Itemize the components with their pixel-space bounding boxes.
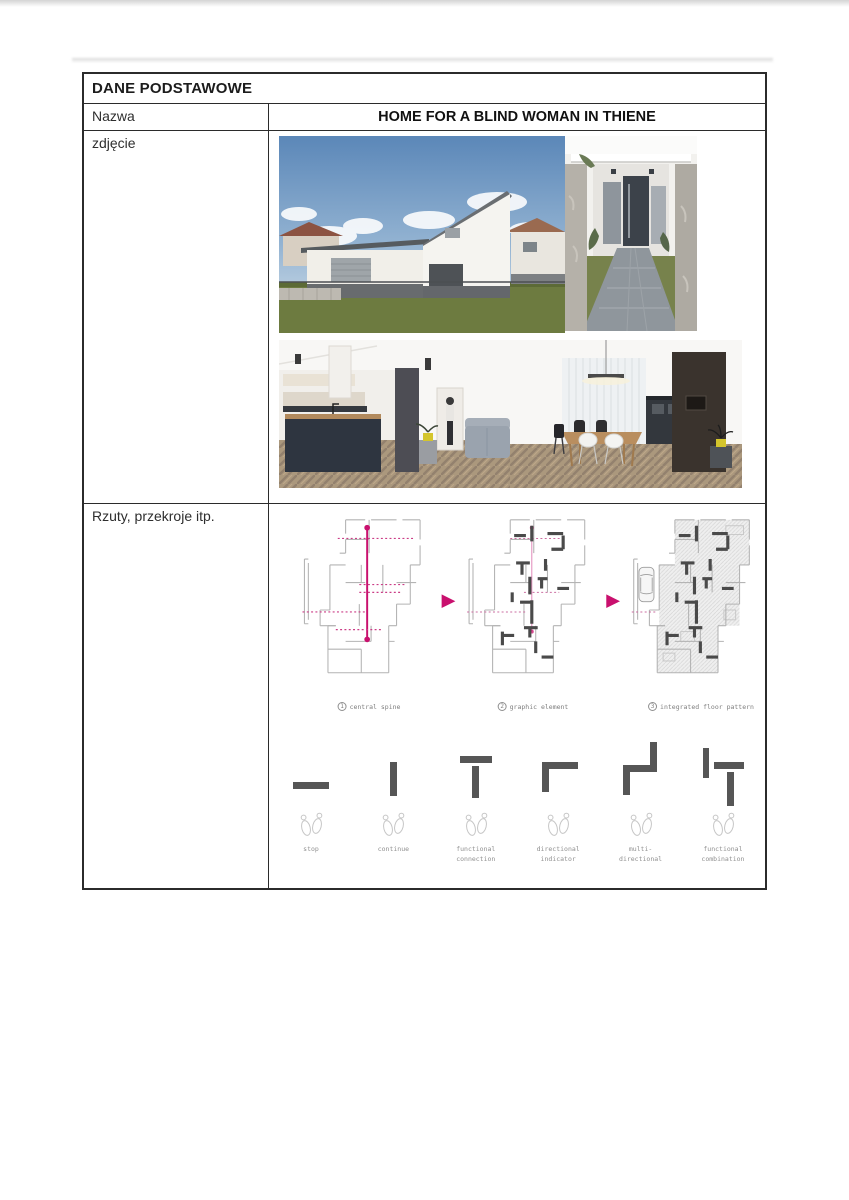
- symbol-label: multi- directional: [619, 844, 662, 864]
- floor-plan-sequence: 1 central spine 2 graphic element 3 inte…: [277, 510, 765, 736]
- footprints-icon: [541, 811, 575, 841]
- name-row: Nazwa HOME FOR A BLIND WOMAN IN THIENE: [84, 103, 765, 130]
- plan-graphic-element: [467, 520, 585, 673]
- scan-artifact-top: [0, 0, 849, 7]
- plan-caption-3: 3 integrated floor pattern: [648, 702, 754, 711]
- symbol-label: functional combination: [701, 844, 744, 864]
- symbol-label: functional connection: [456, 844, 495, 864]
- symbol-label: directional indicator: [537, 844, 580, 864]
- plan-central-spine: [302, 520, 420, 673]
- functional-combination-symbol-icon: [699, 740, 747, 808]
- project-title: HOME FOR A BLIND WOMAN IN THIENE: [269, 104, 765, 130]
- table-header-title: DANE PODSTAWOWE: [84, 80, 252, 97]
- symbol-functional-connection: functional connection: [436, 740, 516, 864]
- plan-caption-1: 1 central spine: [338, 702, 401, 711]
- symbol-label: continue: [378, 844, 409, 854]
- symbol-functional-combination: functional combination: [683, 740, 763, 864]
- arrow-icon: [606, 594, 620, 608]
- plans-row-label: Rzuty, przekroje itp.: [84, 504, 269, 888]
- interior-dining-photo: [510, 340, 742, 488]
- footprints-icon: [706, 811, 740, 841]
- tactile-symbols-legend: stop continue: [271, 740, 763, 864]
- caption-text: graphic element: [510, 703, 569, 711]
- footprints-icon: [376, 811, 410, 841]
- plan-caption-2: 2 graphic element: [498, 702, 569, 711]
- caption-text: integrated floor pattern: [660, 703, 754, 711]
- scan-artifact-smudge: [72, 58, 773, 63]
- symbol-label: stop: [303, 844, 319, 854]
- footprints-icon: [294, 811, 328, 841]
- caption-number-badge: 2: [498, 702, 507, 711]
- interior-kitchen-photo: [279, 340, 510, 488]
- symbol-directional-indicator: directional indicator: [518, 740, 598, 864]
- caption-number-badge: 1: [338, 702, 347, 711]
- entrance-walkway-photo: [565, 136, 697, 331]
- exterior-house-photo: [279, 136, 565, 333]
- symbol-stop: stop: [271, 740, 351, 864]
- symbol-multi-directional: multi- directional: [601, 740, 681, 864]
- document-page: DANE PODSTAWOWE Nazwa HOME FOR A BLIND W…: [0, 0, 849, 1200]
- floor-plans-diagram: [277, 510, 765, 711]
- plans-row: Rzuty, przekroje itp.: [84, 503, 765, 888]
- plan-integrated-floor: [632, 520, 750, 673]
- functional-connection-symbol-icon: [452, 740, 500, 808]
- caption-text: central spine: [350, 703, 401, 711]
- symbol-continue: continue: [353, 740, 433, 864]
- multi-directional-symbol-icon: [617, 740, 665, 808]
- arrow-icon: [442, 594, 456, 608]
- stop-symbol-icon: [287, 740, 335, 808]
- photo-row-label: zdjęcie: [84, 131, 269, 503]
- caption-number-badge: 3: [648, 702, 657, 711]
- photo-row: zdjęcie: [84, 130, 765, 503]
- directional-indicator-symbol-icon: [534, 740, 582, 808]
- table-header-row: DANE PODSTAWOWE: [84, 74, 765, 103]
- photo-collage: [269, 131, 765, 503]
- plans-diagram-area: 1 central spine 2 graphic element 3 inte…: [269, 504, 765, 888]
- basic-data-table: DANE PODSTAWOWE Nazwa HOME FOR A BLIND W…: [82, 72, 767, 890]
- continue-symbol-icon: [369, 740, 417, 808]
- name-row-label: Nazwa: [84, 104, 269, 130]
- footprints-icon: [624, 811, 658, 841]
- footprints-icon: [459, 811, 493, 841]
